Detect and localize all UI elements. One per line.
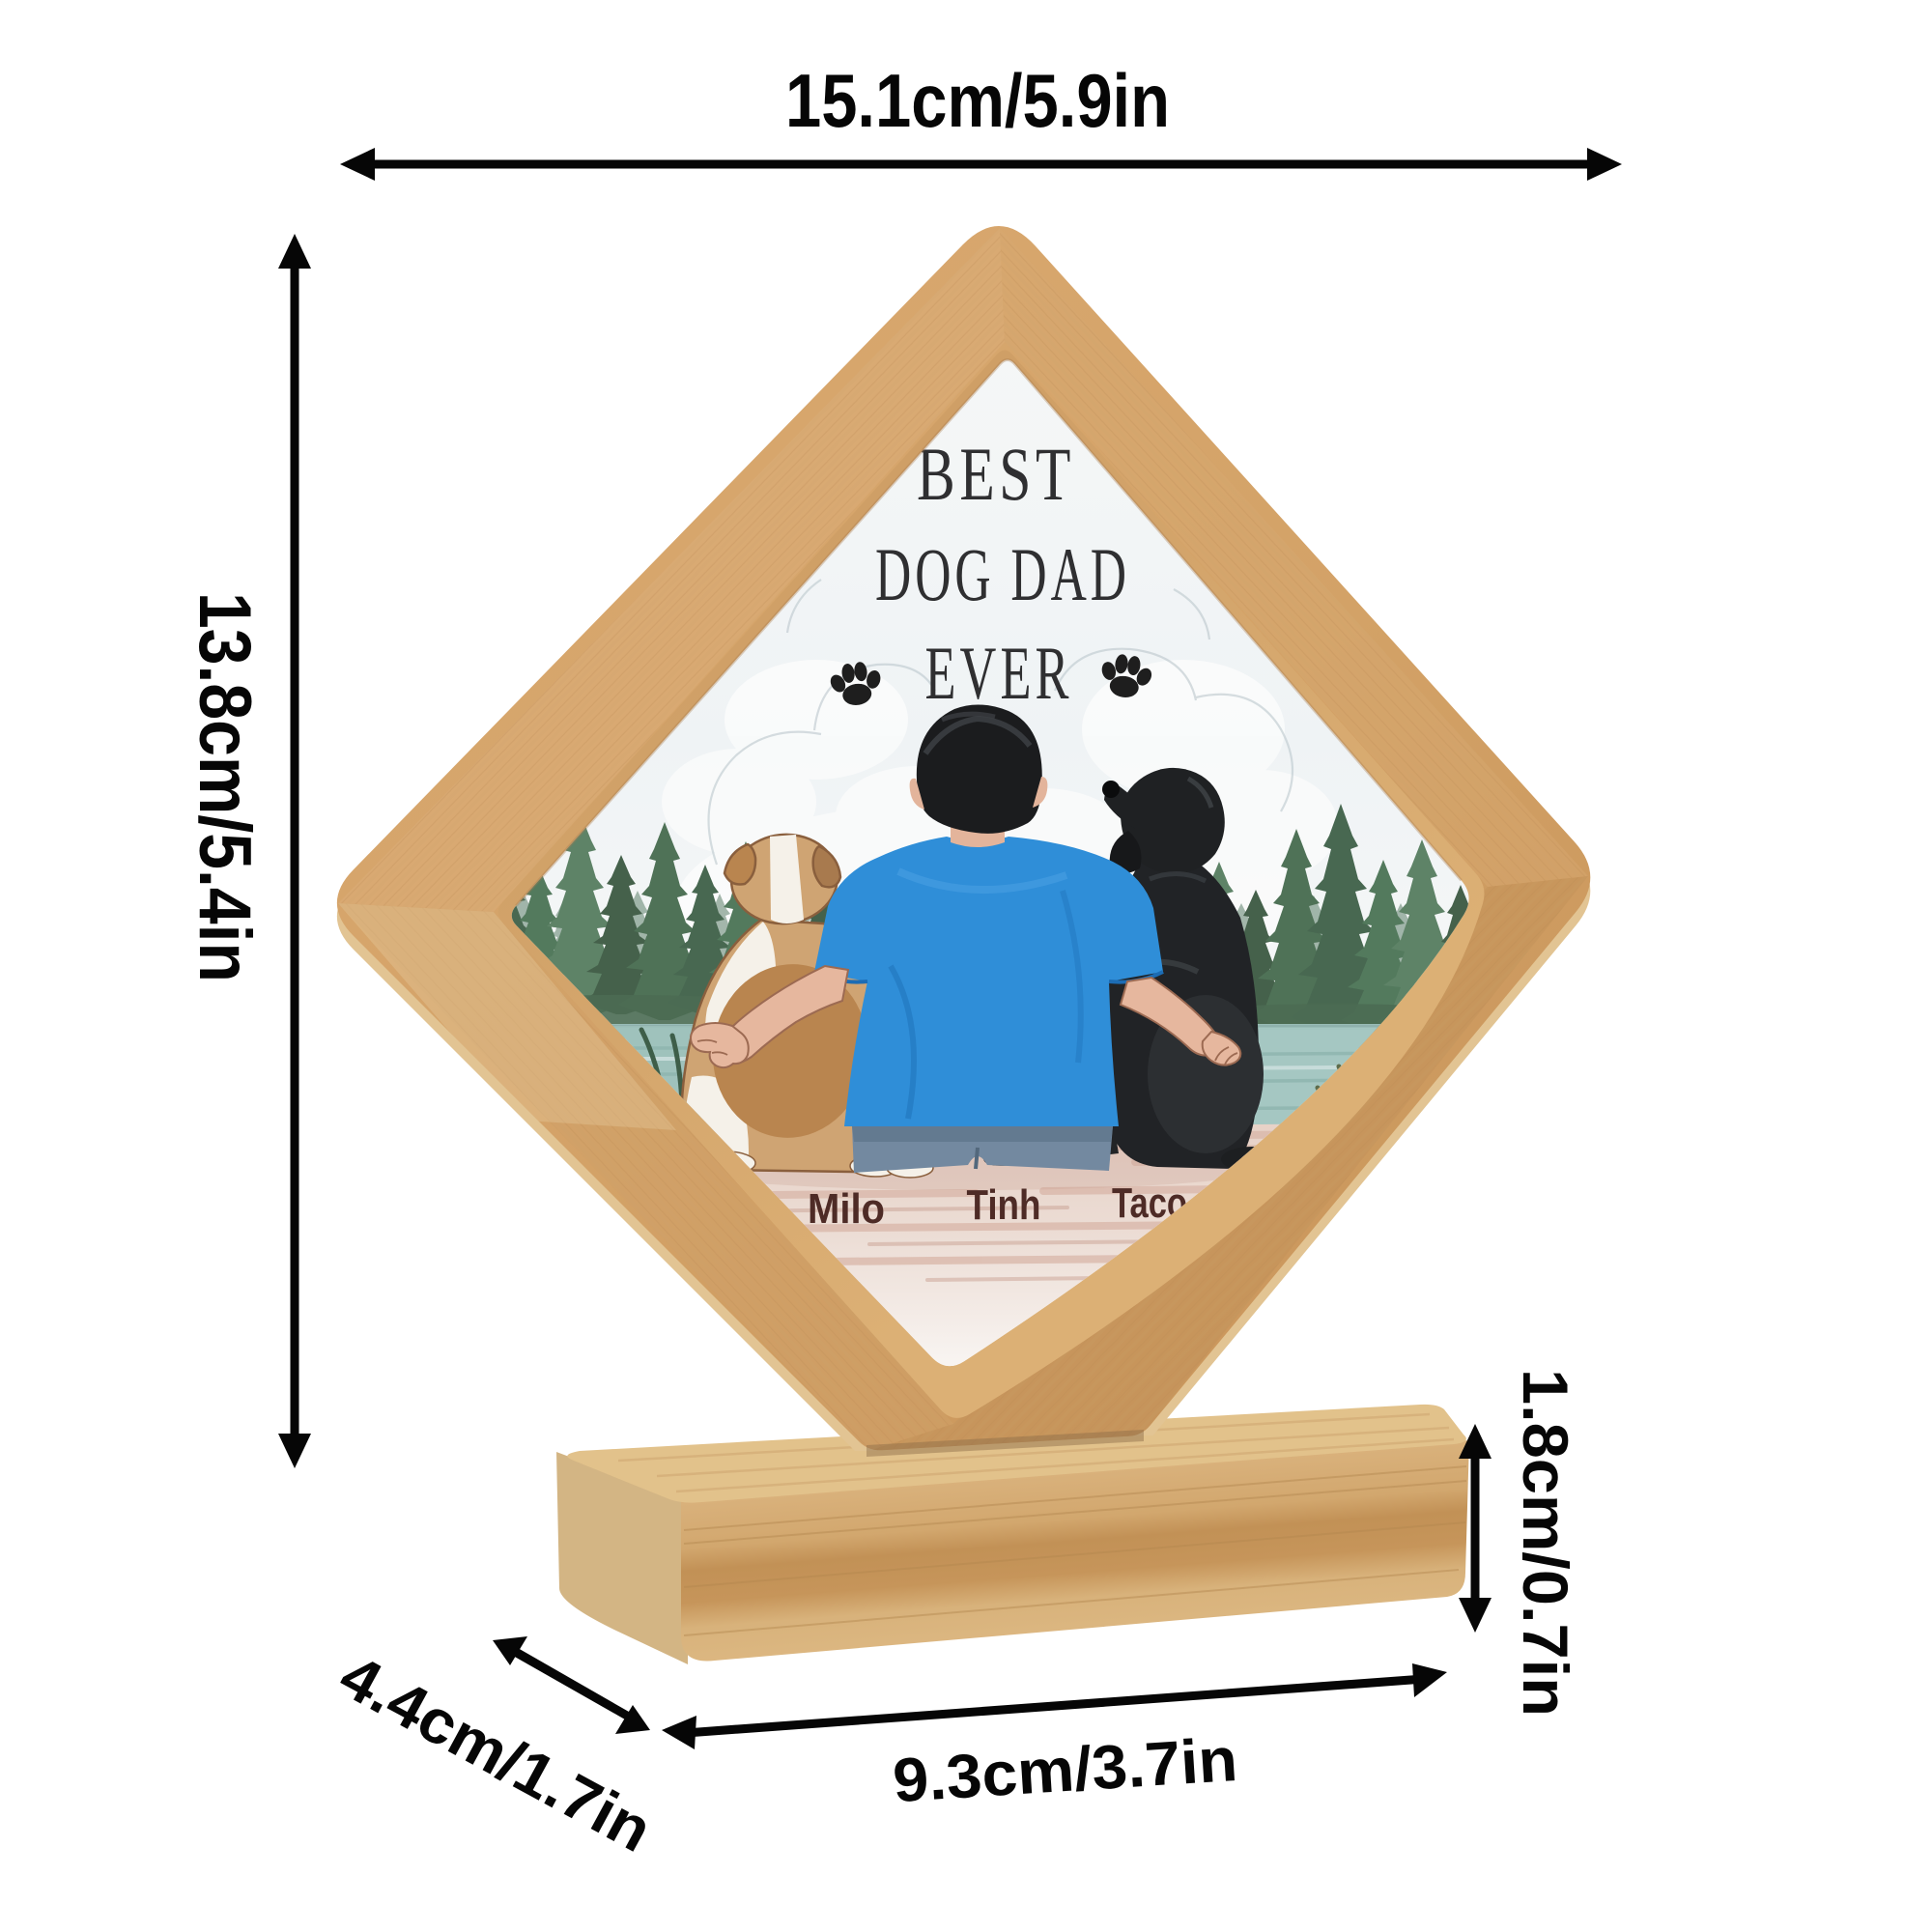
svg-text:13.8cm/5.4in: 13.8cm/5.4in [184, 592, 266, 982]
svg-text:Milo: Milo [808, 1185, 885, 1233]
svg-text:15.1cm/5.9in: 15.1cm/5.9in [785, 58, 1170, 143]
svg-text:EVER: EVER [925, 631, 1073, 715]
svg-text:1.8cm/0.7in: 1.8cm/0.7in [1510, 1369, 1581, 1717]
svg-text:DOG DAD: DOG DAD [875, 532, 1130, 616]
svg-text:BEST: BEST [917, 432, 1075, 516]
svg-text:Tinh: Tinh [967, 1181, 1041, 1229]
